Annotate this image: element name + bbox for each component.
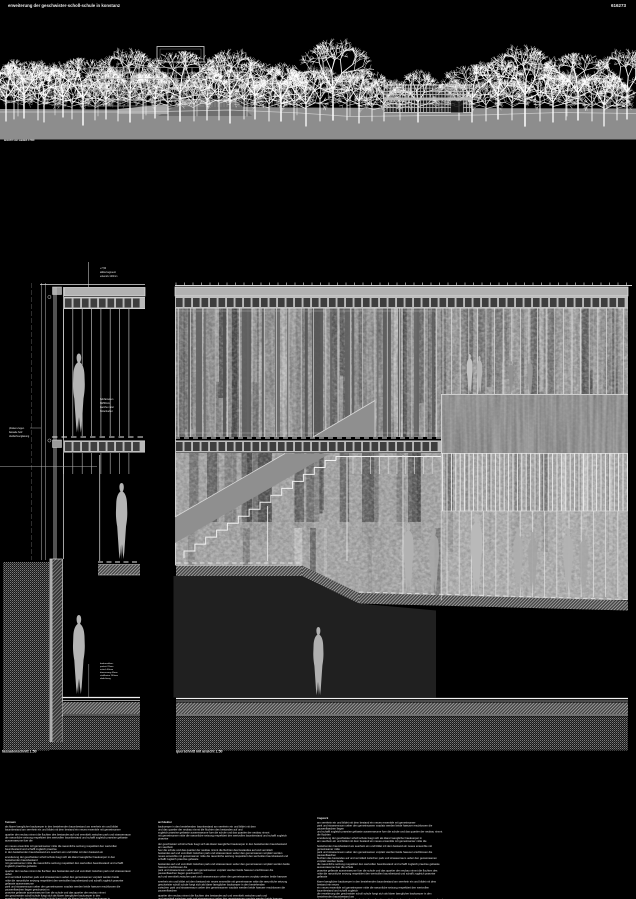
- svg-text:holzlamellen: holzlamellen: [100, 398, 114, 401]
- svg-text:attika begruent: attika begruent: [100, 271, 116, 274]
- svg-text:60/60mm: 60/60mm: [100, 402, 110, 405]
- svg-text:abdichtung: abdichtung: [100, 677, 111, 680]
- svg-text:bodenaufbau:: bodenaufbau:: [100, 663, 114, 665]
- svg-text:daemmung 40mm: daemmung 40mm: [100, 672, 118, 674]
- svg-text:+7,50: +7,50: [100, 267, 107, 270]
- svg-text:fassade holz: fassade holz: [9, 431, 23, 434]
- svg-text:laerche natur: laerche natur: [100, 406, 114, 409]
- svg-text:estrich 60mm: estrich 60mm: [100, 668, 113, 671]
- svg-text:dreifachverglasung: dreifachverglasung: [9, 435, 30, 438]
- svg-text:hinterlueftet: hinterlueftet: [100, 410, 113, 413]
- svg-text:stahlbeton 250mm: stahlbeton 250mm: [100, 674, 118, 677]
- svg-text:parkett 22mm: parkett 22mm: [100, 665, 114, 668]
- svg-text:extensiv 120mm: extensiv 120mm: [100, 275, 117, 278]
- svg-text:pfosten-riegel-: pfosten-riegel-: [9, 427, 24, 430]
